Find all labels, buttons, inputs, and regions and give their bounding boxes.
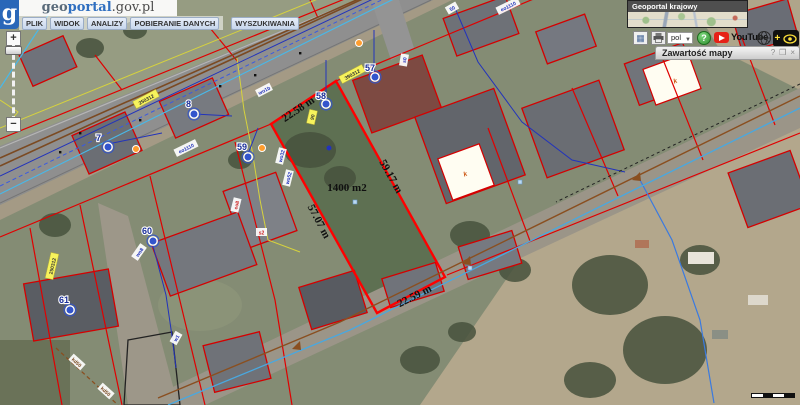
layers-panel-title: Zawartość mapy [656,48,771,58]
svg-text:59: 59 [237,142,247,152]
layers-maximize-button[interactable]: ❒ [779,47,786,59]
add-button[interactable]: + [775,31,781,46]
overview-map-title[interactable]: Geoportal krajowy [628,1,747,12]
menu-wyszukiwania[interactable]: WYSZUKIWANIA [231,17,299,30]
globe-icon [756,30,772,46]
menu-plik[interactable]: PLIK [22,17,47,30]
help-button[interactable]: ? [697,31,711,45]
svg-text:58: 58 [316,91,326,101]
svg-text:8: 8 [186,99,191,109]
overview-map-thumbnail[interactable] [628,12,747,27]
aerial-map-canvas[interactable]: 390312 250312 250312 90 eo1110 eo1110 wo… [0,0,800,405]
brand-title: geoportal.gov.pl [19,0,177,16]
globe-button[interactable] [756,30,772,46]
youtube-play-icon [714,32,729,43]
visibility-toolbar: + [773,30,799,47]
language-value: pol [671,33,681,42]
menu-widok[interactable]: WIDOK [50,17,84,30]
scale-bar [751,393,795,398]
brand-geo: geo [42,0,68,15]
layers-close-button[interactable]: × [790,47,795,59]
svg-text:57: 57 [365,63,375,73]
zoom-out-button[interactable]: − [6,117,21,132]
brand-suffix: .gov.pl [112,0,155,15]
svg-text:60: 60 [142,226,152,236]
garden [0,340,70,405]
area-label: 1400 m2 [327,182,367,194]
menu-analizy[interactable]: ANALIZY [87,17,128,30]
utility-label: s2 [259,230,265,236]
chevron-down-icon: ▼ [685,35,691,45]
parcel-center-dot [327,146,332,151]
overview-map-panel: Geoportal krajowy [627,0,748,28]
zoom-in-button[interactable]: + [6,31,21,46]
language-select[interactable]: pol ▼ [667,32,693,44]
zoom-slider-handle[interactable] [5,46,22,55]
print-button[interactable] [651,31,666,45]
eye-icon[interactable] [783,34,797,44]
layers-panel-header[interactable]: Zawartość mapy ? ❒ × [655,46,800,60]
svg-text:61: 61 [59,295,69,305]
svg-text:7: 7 [96,133,101,143]
printer-icon [653,33,664,43]
main-menu: PLIK WIDOK ANALIZY POBIERANIE DANYCH WYS… [19,16,223,30]
menu-pobieranie-danych[interactable]: POBIERANIE DANYCH [130,17,219,30]
layers-help-button[interactable]: ? [771,47,775,59]
background-select-button[interactable]: ▦ [633,31,648,45]
geoportal-logo[interactable]: g [0,0,19,29]
brand-portal: portal [68,0,112,15]
